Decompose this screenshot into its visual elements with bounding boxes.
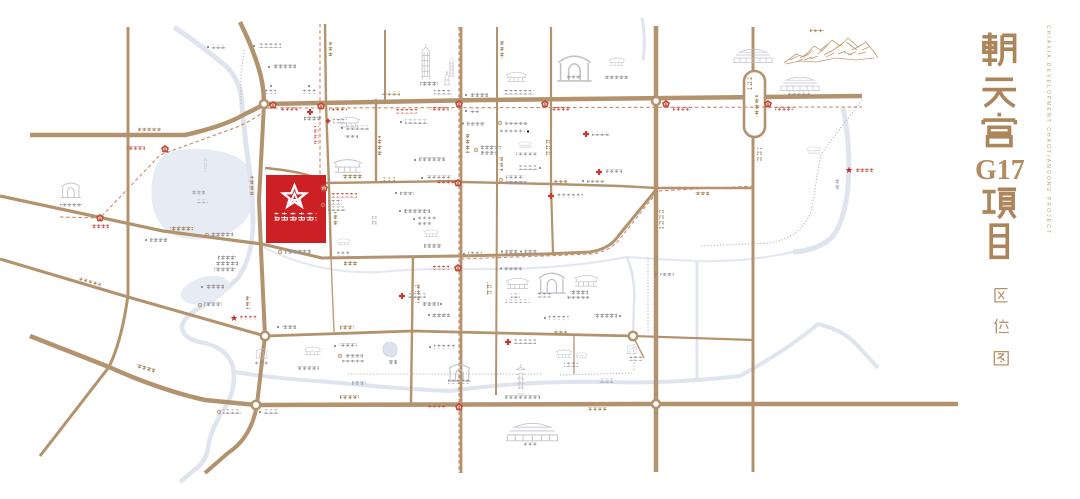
svg-text:CHIAXIA DEVELOPMENT CHAOTIANGO: CHIAXIA DEVELOPMENT CHAOTIANGONG PROJECT [1045,25,1051,235]
svg-text:G17: G17 [975,155,1025,186]
